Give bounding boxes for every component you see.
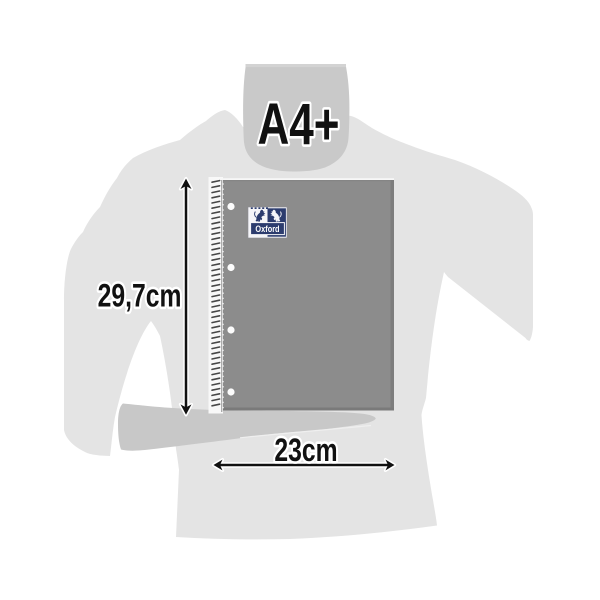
svg-text:Oxford: Oxford bbox=[255, 225, 279, 235]
svg-text:29,7cm: 29,7cm bbox=[98, 278, 182, 314]
svg-text:23cm: 23cm bbox=[274, 433, 337, 469]
svg-text:A4+: A4+ bbox=[257, 91, 339, 156]
